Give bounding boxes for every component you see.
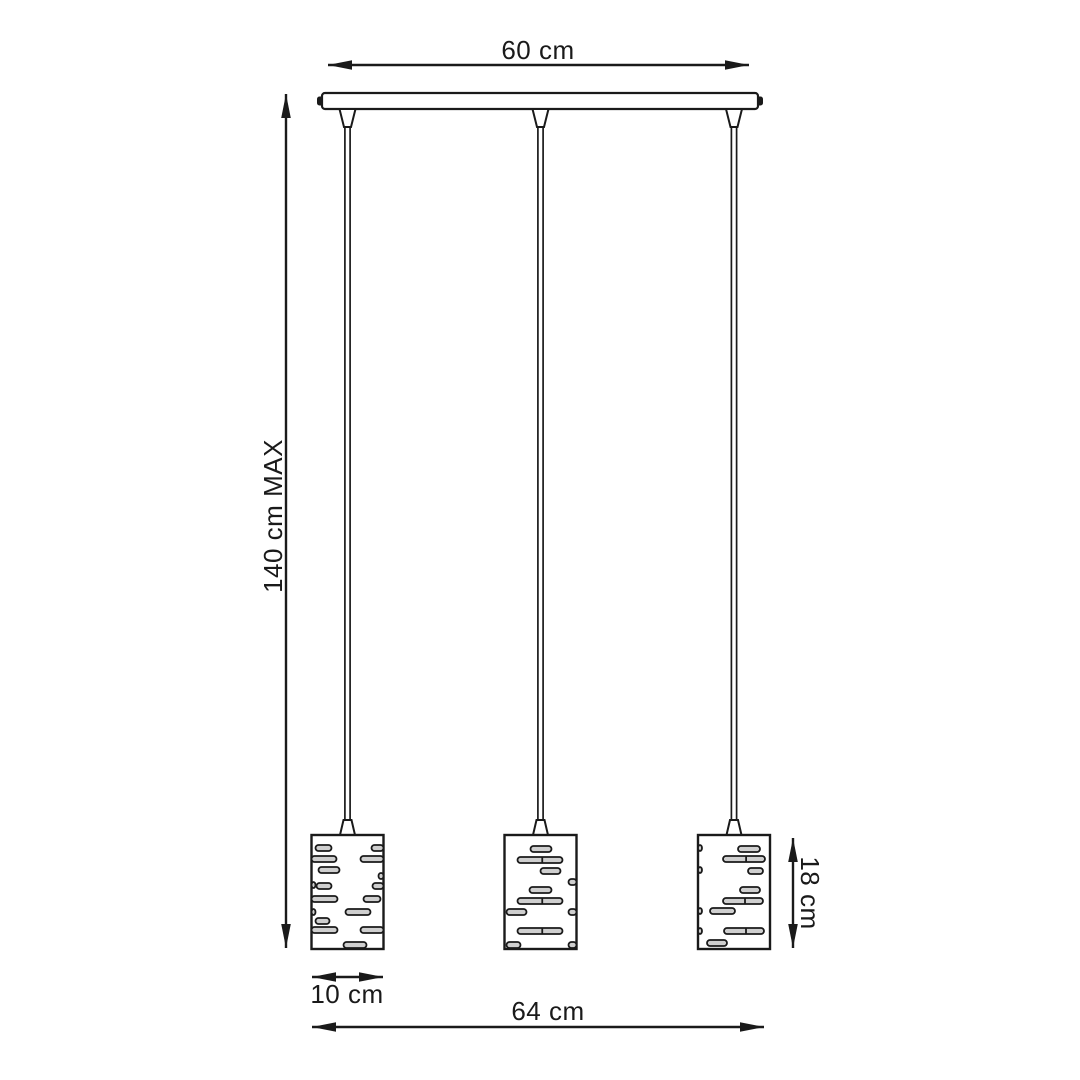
shade-slot — [698, 845, 702, 851]
shade-slot — [569, 942, 577, 948]
cord-grip-top — [533, 109, 549, 127]
dim-shade-diameter: 10 cm — [310, 977, 383, 1009]
shade-slot — [344, 942, 367, 948]
shade-slot — [698, 867, 702, 873]
pendant-2 — [505, 109, 577, 949]
diagram-page: 60 cm 140 cm MAX 10 cm 64 cm 18 cm — [0, 0, 1080, 1080]
shade-slot — [372, 845, 384, 851]
cord-grip-top — [726, 109, 742, 127]
shade-slot — [569, 879, 577, 885]
shade-slot — [312, 882, 316, 888]
canopy-bar — [322, 93, 758, 109]
shade-slot — [740, 887, 760, 893]
shade-slot — [379, 873, 384, 879]
pendants — [312, 109, 771, 949]
shade-slot — [723, 898, 763, 904]
shade-slot — [541, 868, 561, 874]
cord-grip-bottom — [340, 820, 355, 835]
shade-slot — [316, 918, 330, 924]
shade-slot — [710, 908, 735, 914]
cord-grip-bottom — [727, 820, 742, 835]
cord-grip-top — [340, 109, 356, 127]
shade-slot — [312, 909, 316, 915]
shade-slot — [518, 898, 563, 904]
shade-slot — [361, 927, 384, 933]
shade-slot — [346, 909, 371, 915]
dim-label-canopy-width: 60 cm — [501, 35, 574, 65]
shade-slot — [738, 846, 760, 852]
shade-slot — [531, 846, 552, 852]
shade-slot — [507, 909, 527, 915]
shade-slot — [707, 940, 727, 946]
shade-slot — [518, 857, 563, 863]
dim-label-shade-diameter: 10 cm — [310, 979, 383, 1009]
ceiling-canopy — [317, 93, 763, 109]
shade-slot — [507, 942, 521, 948]
pendant-lamp-technical-drawing: 60 cm 140 cm MAX 10 cm 64 cm 18 cm — [0, 0, 1080, 1080]
shade-slot — [724, 928, 764, 934]
dim-label-shade-height: 18 cm — [795, 856, 825, 929]
shade-slot — [312, 896, 338, 902]
shade-slot — [698, 928, 702, 934]
shade-slot — [312, 856, 337, 862]
shade-slot — [312, 927, 338, 933]
shade-slot — [518, 928, 563, 934]
shade-slot — [317, 883, 332, 889]
shade-slot — [361, 856, 384, 862]
pendant-1 — [312, 109, 384, 949]
shade-slot — [569, 909, 577, 915]
shade-slot — [748, 868, 763, 874]
dim-canopy-width: 60 cm — [328, 35, 749, 65]
pendant-3 — [698, 109, 770, 949]
dim-label-max-drop: 140 cm MAX — [258, 439, 288, 593]
shade-slot — [530, 887, 552, 893]
shade-slot — [319, 867, 340, 873]
shade-slot — [373, 883, 384, 889]
dim-max-drop: 140 cm MAX — [258, 94, 288, 948]
shade-slot — [316, 845, 332, 851]
shade-slot — [364, 896, 381, 902]
dim-shade-height: 18 cm — [793, 838, 825, 948]
shade-slot — [723, 856, 765, 862]
shade-slot — [698, 908, 702, 914]
cord-grip-bottom — [533, 820, 548, 835]
dim-label-total-width: 64 cm — [511, 996, 584, 1026]
